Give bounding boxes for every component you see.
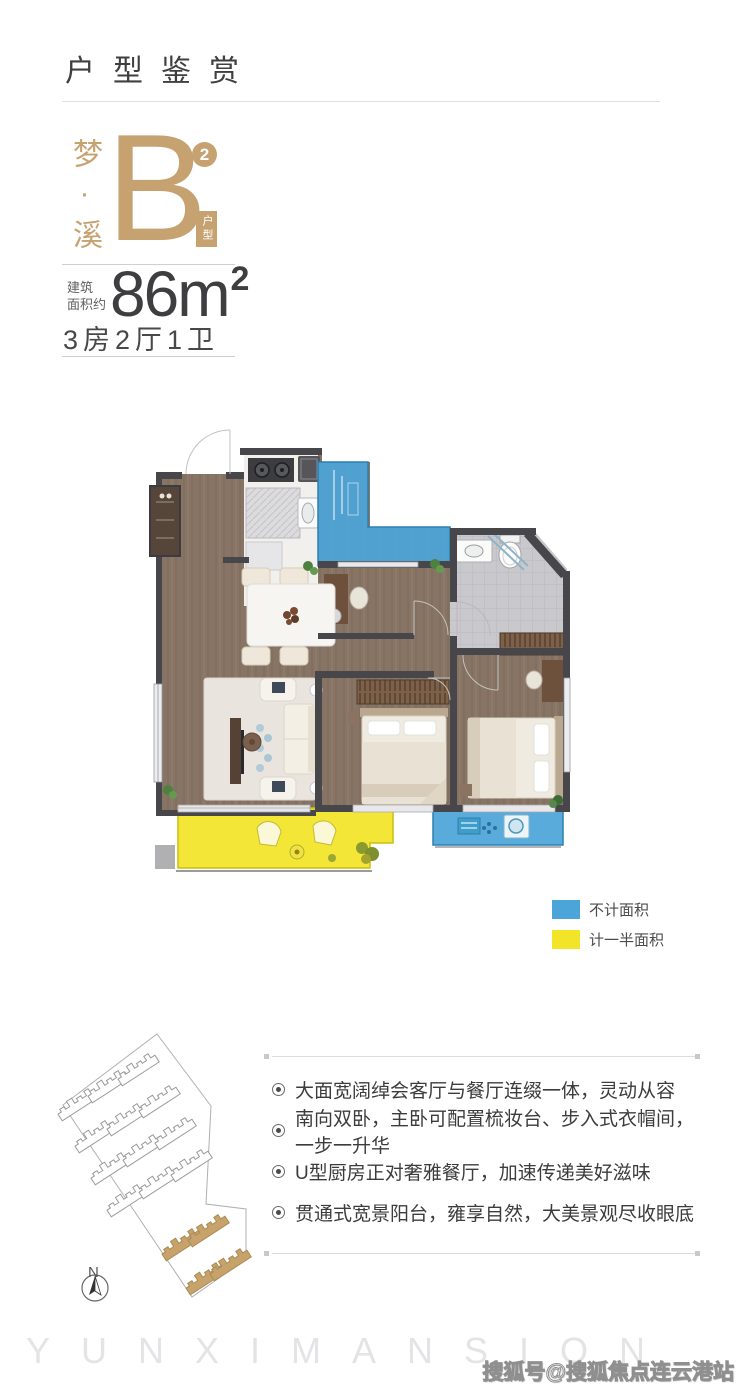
entry-door-icon bbox=[186, 430, 230, 474]
bullet-icon bbox=[272, 1124, 285, 1137]
title-divider bbox=[62, 101, 660, 102]
unit-type-label: 户型 bbox=[201, 215, 212, 243]
features-list: 大面宽阔绰会客厅与餐厅连缀一体，灵动从容 南向双卧，主卧可配置梳妆台、步入式衣帽… bbox=[272, 1069, 696, 1233]
shoe-cabinet-icon bbox=[150, 486, 180, 556]
living-room bbox=[204, 678, 322, 800]
wardrobe-icon bbox=[357, 680, 449, 704]
tv-cabinet-icon bbox=[230, 718, 241, 784]
watermark: 搜狐号@搜狐焦点连云港站 bbox=[483, 1356, 734, 1386]
feature-item: 南向双卧，主卧可配置梳妆台、步入式衣帽间，一步一升华 bbox=[272, 1110, 696, 1151]
feature-item: 贯通式宽景阳台，雍享自然，大美景观尽收眼底 bbox=[272, 1192, 696, 1233]
area-box-bottom-line bbox=[62, 356, 235, 357]
bullet-icon bbox=[272, 1083, 285, 1096]
flyer-page: 户型鉴赏 梦·溪 B 2 户型 建筑 面积约 86m2 3房2厅1卫 bbox=[0, 0, 740, 1392]
floor-plan bbox=[148, 428, 578, 894]
unit-type-box: 户型 bbox=[196, 211, 217, 247]
desk-icon bbox=[542, 660, 564, 702]
legend-swatch-blue bbox=[552, 900, 580, 919]
bullet-icon bbox=[272, 1165, 285, 1178]
lounge-chair-icon bbox=[257, 822, 281, 846]
area-label: 建筑 面积约 bbox=[67, 279, 106, 313]
half-counted-balcony bbox=[176, 808, 393, 871]
series-name-vertical: 梦·溪 bbox=[62, 138, 106, 258]
page-title: 户型鉴赏 bbox=[65, 46, 257, 90]
features-section: 大面宽阔绰会客厅与餐厅连缀一体，灵动从容 南向双卧，主卧可配置梳妆台、步入式衣帽… bbox=[272, 1056, 696, 1254]
room-count: 3房2厅1卫 bbox=[63, 318, 219, 357]
bedroom bbox=[348, 680, 449, 804]
features-bottom-divider bbox=[272, 1253, 696, 1254]
bullet-icon bbox=[272, 1206, 285, 1219]
laundry-balcony bbox=[433, 808, 563, 847]
legend-row-half-counted: 计一半面积 bbox=[552, 930, 664, 949]
unit-letter: B bbox=[106, 112, 207, 264]
lounge-chair-icon bbox=[313, 821, 336, 845]
unit-superscript-badge: 2 bbox=[192, 142, 217, 167]
legend-swatch-yellow bbox=[552, 930, 580, 949]
feature-item: U型厨房正对奢雅餐厅，加速传递美好滋味 bbox=[272, 1151, 696, 1192]
plan-legend: 不计面积 计一半面积 bbox=[552, 900, 664, 960]
compass-north-label: N bbox=[88, 1264, 99, 1281]
not-counted-area bbox=[318, 462, 450, 566]
site-plan bbox=[40, 1018, 270, 1308]
bathroom bbox=[450, 531, 567, 650]
legend-row-not-counted: 不计面积 bbox=[552, 900, 664, 919]
features-top-divider bbox=[272, 1056, 696, 1057]
